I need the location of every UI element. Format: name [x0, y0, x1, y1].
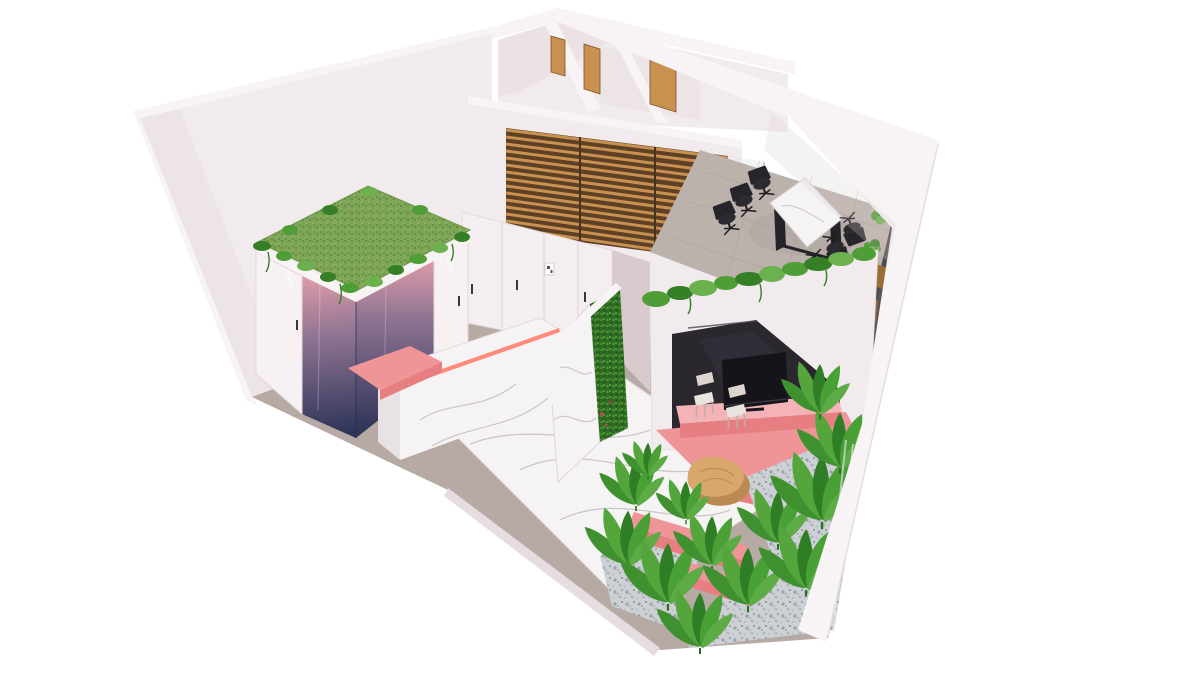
wall-sign-glyph: [551, 270, 553, 273]
office-isometric-render: Isometric cutaway 3D render of a modern …: [0, 0, 1200, 675]
tv: Flat-screen TV: [722, 352, 788, 412]
wall-sign: Small wall sign: [545, 263, 554, 275]
wall-sign-glyph: [547, 266, 550, 269]
wood-door-1: [551, 36, 565, 76]
booth-glass-left: [302, 276, 356, 438]
wood-door-2: [584, 44, 600, 94]
tv-screen: [722, 352, 788, 410]
